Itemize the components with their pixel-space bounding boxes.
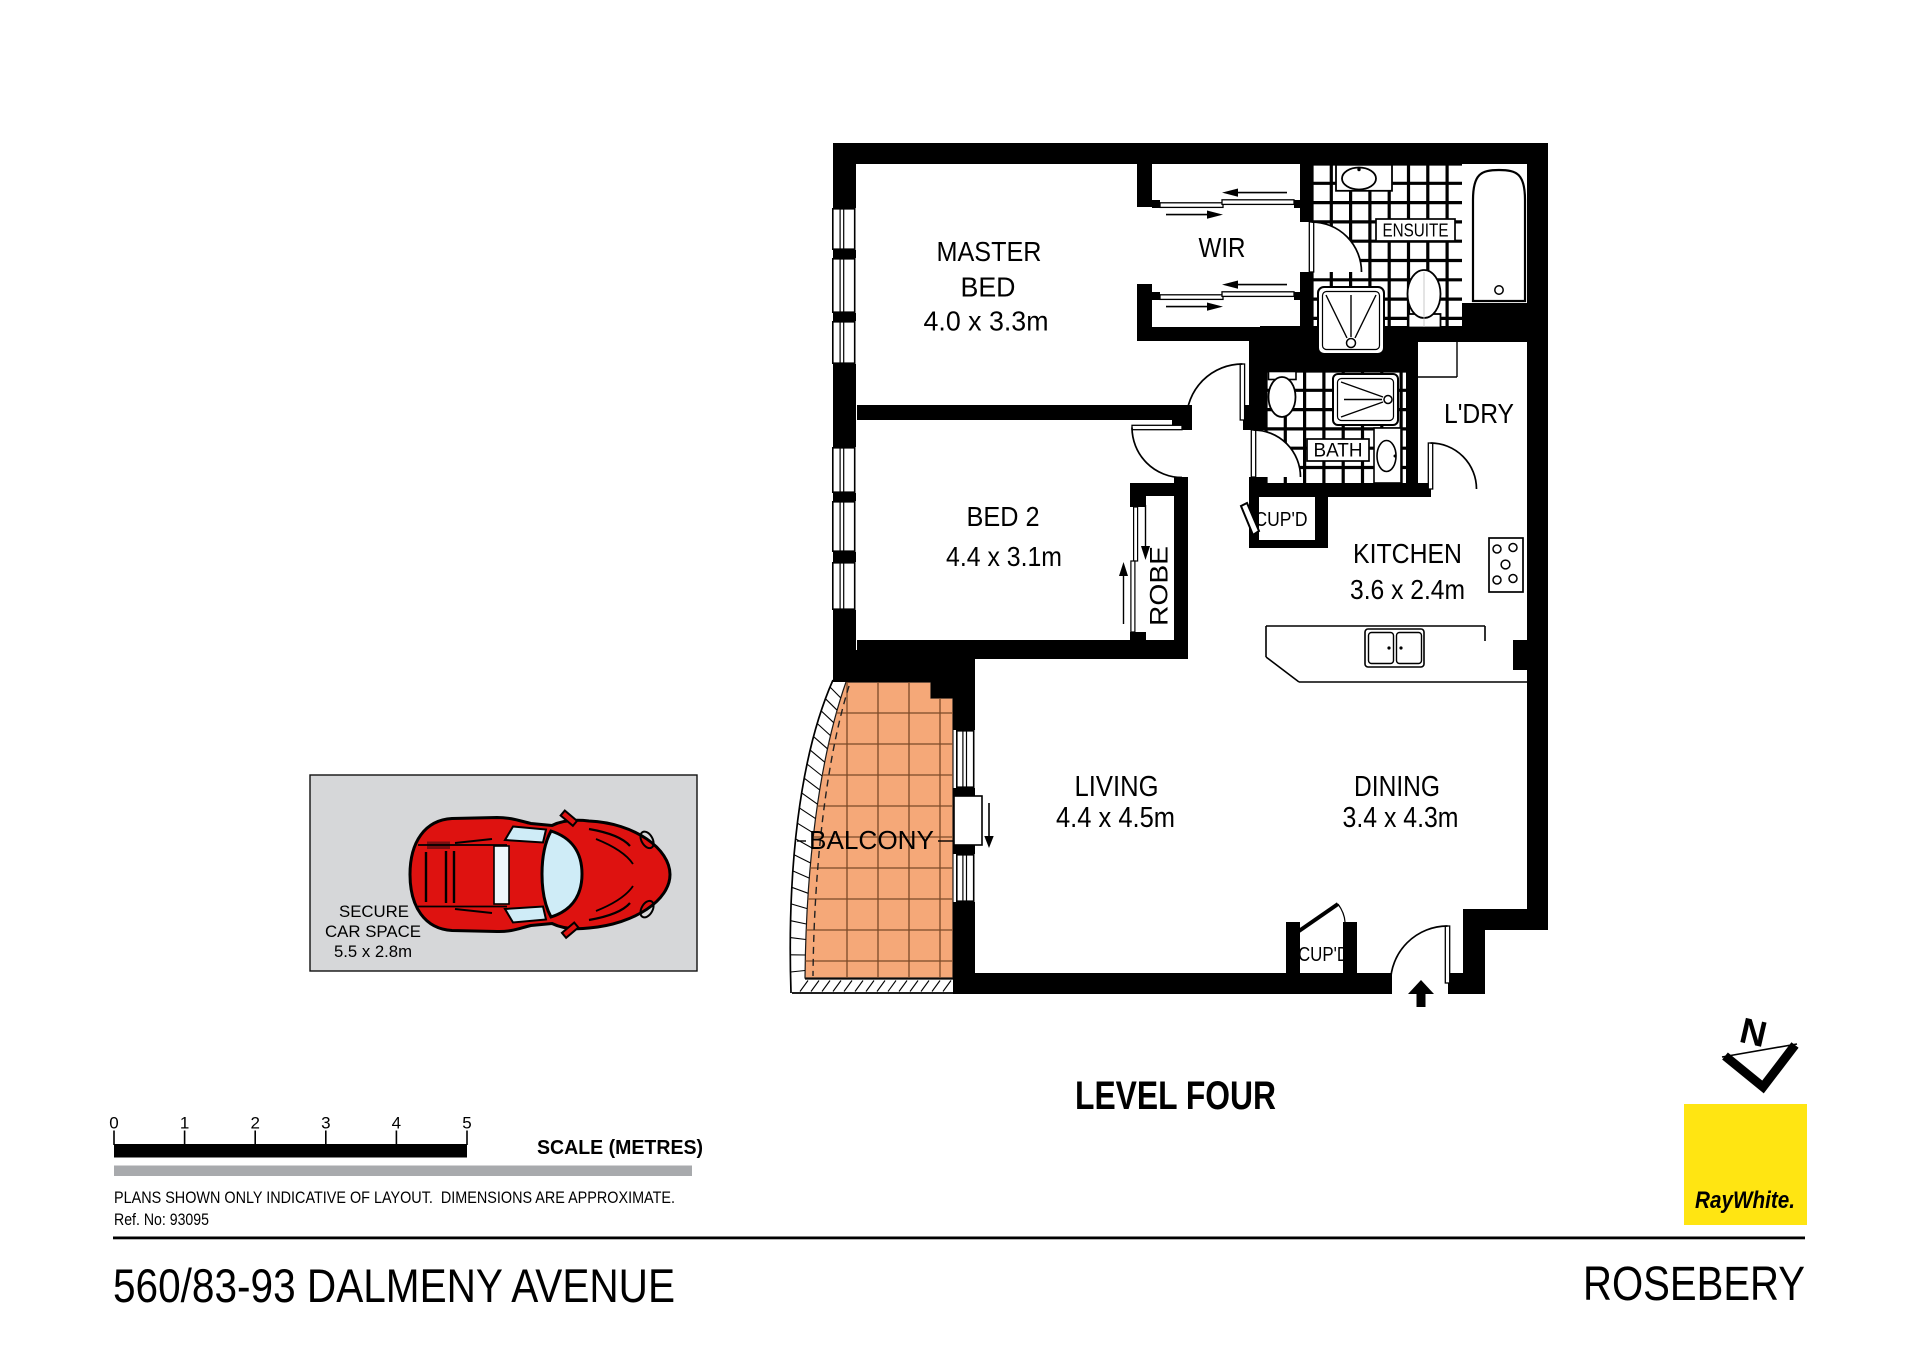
svg-text:KITCHEN: KITCHEN bbox=[1353, 538, 1462, 569]
svg-text:3: 3 bbox=[321, 1114, 330, 1133]
svg-text:560/83-93 DALMENY AVENUE: 560/83-93 DALMENY AVENUE bbox=[113, 1259, 675, 1312]
svg-text:LIVING: LIVING bbox=[1075, 771, 1159, 803]
svg-text:5.5 x 2.8m: 5.5 x 2.8m bbox=[334, 942, 412, 961]
svg-text:ROBE: ROBE bbox=[1146, 546, 1174, 626]
svg-text:2: 2 bbox=[250, 1114, 259, 1133]
svg-text:5: 5 bbox=[462, 1114, 471, 1133]
svg-text:RayWhite.: RayWhite. bbox=[1695, 1187, 1795, 1214]
svg-text:4.4 x 3.1m: 4.4 x 3.1m bbox=[946, 541, 1062, 572]
svg-text:CUP'D: CUP'D bbox=[1255, 509, 1308, 531]
svg-text:PLANS SHOWN ONLY INDICATIVE OF: PLANS SHOWN ONLY INDICATIVE OF LAYOUT. D… bbox=[114, 1188, 675, 1207]
svg-text:MASTER: MASTER bbox=[937, 236, 1042, 267]
svg-text:L'DRY: L'DRY bbox=[1444, 398, 1514, 429]
svg-text:SCALE (METRES): SCALE (METRES) bbox=[537, 1137, 703, 1159]
svg-text:Ref. No: 93095: Ref. No: 93095 bbox=[114, 1210, 209, 1229]
svg-text:4.4 x 4.5m: 4.4 x 4.5m bbox=[1056, 802, 1175, 834]
svg-text:BATH: BATH bbox=[1314, 441, 1363, 462]
svg-text:1: 1 bbox=[180, 1114, 189, 1133]
svg-text:WIR: WIR bbox=[1199, 232, 1246, 263]
svg-text:BED: BED bbox=[961, 272, 1016, 303]
svg-text:4.0 x 3.3m: 4.0 x 3.3m bbox=[924, 306, 1049, 337]
svg-text:CUP'D: CUP'D bbox=[1298, 944, 1349, 966]
svg-text:3.6 x 2.4m: 3.6 x 2.4m bbox=[1350, 574, 1465, 605]
svg-text:LEVEL FOUR: LEVEL FOUR bbox=[1075, 1074, 1276, 1118]
svg-text:BALCONY: BALCONY bbox=[809, 825, 934, 855]
svg-text:DINING: DINING bbox=[1354, 771, 1440, 803]
svg-text:ENSUITE: ENSUITE bbox=[1383, 221, 1449, 241]
svg-text:CAR SPACE: CAR SPACE bbox=[325, 922, 421, 941]
svg-text:0: 0 bbox=[109, 1114, 118, 1133]
svg-text:BED 2: BED 2 bbox=[967, 501, 1040, 532]
svg-text:SECURE: SECURE bbox=[339, 902, 409, 921]
svg-text:3.4 x 4.3m: 3.4 x 4.3m bbox=[1343, 802, 1459, 834]
svg-text:ROSEBERY: ROSEBERY bbox=[1583, 1258, 1805, 1311]
svg-text:4: 4 bbox=[392, 1114, 401, 1133]
